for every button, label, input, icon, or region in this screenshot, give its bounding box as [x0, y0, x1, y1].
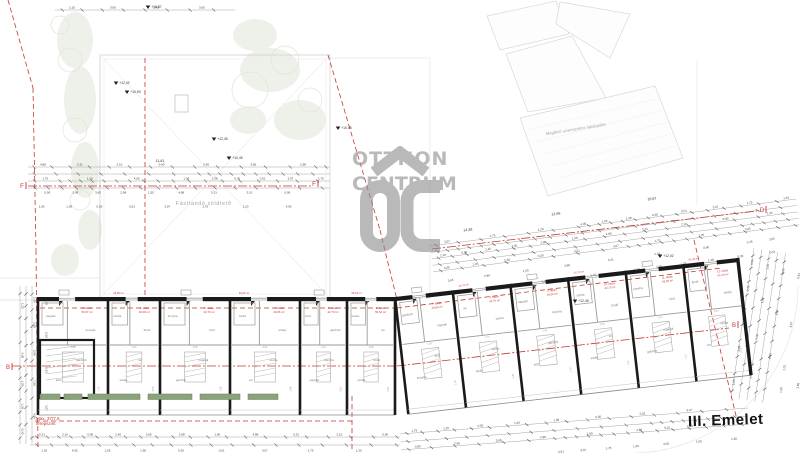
dim-number: 0,51 — [129, 205, 135, 209]
partition-wall — [535, 285, 540, 329]
elevation-marker-icon — [212, 138, 217, 142]
dim-number: 1,38 — [553, 418, 559, 422]
dim-number: 3,07 — [684, 353, 688, 359]
exterior-wall — [545, 277, 568, 284]
room-label: erkély — [352, 314, 361, 318]
garden-vegetation — [78, 210, 102, 250]
dim-number: 4,05 — [444, 265, 451, 270]
exterior-wall — [510, 281, 532, 288]
dim-number: 0,30 — [96, 205, 102, 209]
dim-number: 0,30 — [595, 415, 601, 419]
dim-number: 4,05 — [663, 442, 669, 446]
dim-number: 3,07 — [712, 205, 719, 210]
dim-number: 1,20 — [41, 449, 47, 453]
room-label: fürdő — [144, 328, 151, 332]
dim-number: 0,90 — [750, 259, 755, 266]
dim-number: 1,05 — [472, 262, 479, 267]
exterior-wall — [568, 275, 586, 281]
exterior-wall — [716, 258, 738, 265]
elevation-value: +16,87 — [151, 5, 162, 9]
partition-wall — [650, 272, 655, 316]
dim-number: 1,05 — [369, 346, 374, 349]
apartment-area-exterior: 49,06 m² — [239, 291, 249, 295]
dim-number: 1,20 — [454, 380, 458, 386]
dim-number: 4,05 — [286, 205, 292, 209]
dim-number: 1,38 — [731, 437, 737, 441]
dim-number: 1,75 — [782, 364, 787, 371]
party-wall — [299, 297, 302, 415]
room-label: fürdő — [691, 280, 699, 285]
dim-number: 1,75 — [654, 238, 661, 243]
dimension-chain: 5,312,100,902,453,652,981,504,885,312,10… — [30, 433, 400, 453]
dim-number: 1,75 — [746, 200, 753, 205]
dim-number: 4,05 — [134, 177, 140, 181]
dim-number: 0,30 — [20, 429, 24, 435]
planter — [148, 394, 192, 400]
elevation-value: +12,45 — [217, 137, 228, 141]
dim-number: 4,05 — [72, 449, 78, 453]
building-right-wing: 7. lakás49,06 m²gardróbnappalikonyhaközl… — [393, 251, 753, 415]
room-label: konyha — [633, 286, 643, 291]
dim-number: 3,65 — [146, 433, 152, 437]
room-label: konyha — [168, 314, 178, 318]
dimension-chains: 4,885,312,100,902,453,652,981,751,204,05… — [18, 6, 800, 453]
room-label: szoba — [357, 378, 365, 382]
exterior-wall — [395, 295, 413, 301]
dim-number: 1,05 — [105, 449, 111, 453]
dim-number: 2,98 — [32, 350, 36, 356]
garden-vegetation — [230, 106, 266, 134]
apartment-unit: 6. lakás56,64 m²56,64 m²erkélywcszobafür… — [346, 291, 395, 415]
apartment-area-exterior: 42,70 m² — [574, 269, 585, 274]
room-label: közl. — [669, 296, 676, 301]
dim-number: 0,30 — [600, 322, 606, 326]
door-swing — [251, 301, 255, 306]
red-dashed-line — [380, 230, 397, 300]
elevation-marker-icon — [573, 300, 578, 304]
dim-number: 1,38 — [140, 449, 146, 453]
room-label: szoba — [576, 293, 585, 298]
room-label: nappali — [309, 378, 319, 382]
dim-number: 0,30 — [538, 253, 545, 258]
dim-number: 1,50 — [148, 191, 154, 195]
exterior-wall — [138, 297, 160, 301]
dim-number: 1,75 — [98, 386, 101, 391]
exterior-wall — [658, 264, 683, 271]
dim-number: 1,50 — [214, 433, 220, 437]
dim-number: 0,30 — [178, 449, 184, 453]
dim-number: 5,31 — [211, 191, 217, 195]
red-dashed-line — [33, 88, 36, 250]
dim-number: 4,88 — [40, 163, 46, 167]
room-label: erkély — [491, 346, 500, 351]
dim-number: 3,07 — [262, 449, 268, 453]
window — [473, 290, 486, 292]
dim-number: 3,65 — [769, 237, 776, 242]
room-label: nappali — [518, 299, 528, 304]
room-label: közl. — [435, 353, 442, 358]
elevation-marker-icon — [227, 157, 232, 161]
balcony-box — [642, 261, 653, 267]
dim-number: 3,65 — [796, 382, 800, 389]
elevation-marker-icon — [658, 255, 663, 259]
red-dashed-line — [397, 268, 722, 308]
dim-number: 1,20 — [633, 444, 639, 448]
dim-number: 2,10 — [681, 222, 688, 227]
dim-number: 2,10 — [336, 433, 342, 437]
exterior-wall — [327, 297, 347, 301]
room-label: szoba — [269, 358, 277, 362]
dim-number: 2,10 — [62, 433, 68, 437]
dim-number: 1,05 — [514, 421, 520, 425]
dim-number: 0,51 — [681, 209, 688, 214]
building-left-wing: 1. lakás53,97 m²nappalikonyhaközl.gardró… — [37, 290, 397, 415]
room-label: nappali — [46, 314, 56, 318]
dim-number: 4,05 — [477, 423, 483, 427]
dim-number: 5,31 — [387, 386, 390, 391]
section-marker: B — [6, 365, 10, 371]
apartment-area: 49,06 m² — [139, 310, 150, 314]
dim-number: 0,51 — [260, 177, 266, 181]
dim-number: 2,10 — [69, 6, 75, 10]
dim-number: 2,98 — [120, 191, 126, 195]
dimension-chain: 2,100,902,453,65 — [55, 6, 235, 12]
dim-number: 0,51 — [770, 250, 777, 255]
dim-number: 0,30 — [737, 254, 744, 259]
dim-number: 4,88 — [253, 433, 259, 437]
apartment-area-exterior: 49,06 m² — [113, 291, 123, 295]
dim-number: 0,90 — [110, 6, 116, 10]
section-marker: F — [20, 184, 24, 190]
room-label: wc — [249, 378, 253, 382]
room-label: wc — [138, 358, 142, 362]
planter — [64, 394, 82, 400]
planter — [40, 394, 60, 400]
dim-number: 1,05 — [220, 386, 223, 391]
dim-number: 0,90 — [152, 386, 155, 391]
dim-number: 1,05 — [39, 205, 45, 209]
dim-number: 0,90 — [722, 216, 729, 221]
dim-number: 1,75 — [605, 446, 611, 450]
window — [472, 288, 485, 290]
dim-number: 4,88 — [564, 263, 571, 268]
dim-number: 3,65 — [193, 346, 198, 349]
dim-number: 1,50 — [572, 236, 579, 241]
dim-number: 1,75 — [318, 177, 324, 181]
apartment-area: 61,20 m² — [717, 272, 728, 277]
room-label: nappali — [663, 327, 673, 332]
dim-number: 2,10 — [117, 163, 123, 167]
exterior-wall — [347, 297, 365, 301]
dim-number: 2,45 — [747, 240, 754, 245]
room-label: erkély — [278, 328, 287, 332]
dim-number: 3,65 — [447, 278, 454, 283]
red-dashed-line — [694, 240, 737, 420]
elevation-value: +12,02 — [119, 81, 130, 85]
dim-number: 1,75 — [42, 177, 48, 181]
apartment-area: 42,70 m² — [327, 310, 338, 314]
dim-number: 1,50 — [523, 268, 530, 273]
door-swing — [187, 301, 191, 306]
dim-number: 1,38 — [569, 366, 573, 372]
elevation-value: +10,45 — [232, 156, 243, 160]
room-label: fürdő — [239, 314, 246, 318]
exterior-wall — [160, 297, 187, 301]
room-label: szoba — [495, 316, 504, 321]
floor-title: III. Emelet — [688, 411, 764, 431]
stairs — [537, 334, 558, 366]
garden-vegetation — [51, 244, 79, 276]
building: 1. lakás53,97 m²nappalikonyhaközl.gardró… — [37, 251, 753, 415]
dim-number: 1,38 — [625, 216, 632, 221]
apartment-area: 49,06 m² — [273, 310, 284, 314]
room-label: wc — [463, 306, 468, 310]
dim-number: 0,30 — [652, 212, 659, 217]
dim-number: 0,90 — [44, 191, 50, 195]
dim-number: 1,50 — [427, 342, 433, 346]
dim-number: 2,98 — [540, 240, 547, 245]
dim-number: 1,75 — [411, 428, 417, 432]
dim-number: 4,88 — [178, 191, 184, 195]
red-dashed-line — [8, 0, 33, 88]
apartment-area: 42,70 m² — [203, 310, 214, 314]
dim-number: 1,20 — [132, 346, 137, 349]
dim-number: 1,20 — [443, 426, 449, 430]
room-label: gardrób — [76, 358, 87, 362]
apartment-area: 42,70 m² — [489, 298, 500, 303]
exterior-wall — [230, 297, 251, 301]
room-label: konyha — [552, 309, 562, 314]
dim-number: 5,31 — [642, 227, 649, 232]
dim-number: 2,45 — [454, 441, 460, 445]
room-label: gardrób — [402, 312, 413, 317]
dim-number: 4,05 — [714, 309, 720, 313]
room-label: gardrób — [176, 378, 187, 382]
apartment-area: 49,06 m² — [662, 278, 673, 283]
terrace-label: Fásítandó zöldtető — [176, 201, 232, 207]
balcony-box — [59, 290, 69, 295]
room-label: erkély — [120, 378, 129, 382]
end-wall — [736, 258, 753, 376]
dim-number: 5,31 — [608, 257, 615, 262]
partition-wall — [593, 279, 598, 323]
exterior-wall — [426, 290, 454, 297]
dim-number: 0,51 — [263, 346, 268, 349]
dim-number: 2,98 — [300, 163, 306, 167]
garden-vegetation — [71, 142, 99, 198]
dim-number: 2,45 — [32, 297, 36, 303]
dim-number: 1,50 — [627, 360, 631, 366]
dim-number: 1,75 — [485, 335, 491, 339]
dim-number: 5,31 — [39, 433, 45, 437]
dim-number: 3,65 — [250, 163, 256, 167]
dim-number: 2,45 — [485, 247, 492, 252]
dim-number: 3,07 — [44, 405, 48, 411]
dim-number: 2,45 — [115, 433, 121, 437]
dim-number: 5,31 — [658, 316, 664, 320]
dim-number: 0,51 — [219, 449, 225, 453]
room-label: gardrób — [548, 340, 559, 345]
span-dimension: 11,61 — [156, 159, 165, 163]
room-label: fürdő — [611, 303, 619, 308]
elevation-marker-icon — [336, 127, 341, 131]
party-wall — [346, 297, 349, 415]
section-marker: D — [760, 208, 765, 214]
dim-number: 2,45 — [766, 211, 773, 216]
dim-number: 3,07 — [444, 239, 451, 244]
room-label: konyha — [324, 358, 334, 362]
garden-vegetation — [233, 19, 277, 51]
exterior-wall — [108, 297, 126, 301]
room-label: erkély — [724, 290, 733, 295]
dim-number: 1,05 — [696, 439, 702, 443]
dim-number: 0,90 — [382, 433, 388, 437]
garden-vegetation — [57, 12, 93, 68]
room-label: közl. — [209, 328, 215, 332]
room-label: közl. — [305, 314, 311, 318]
dim-number: 1,38 — [504, 258, 511, 263]
apartment-area: 49,06 m² — [547, 292, 558, 297]
section-marker: F — [312, 182, 316, 188]
dim-number: 1,20 — [783, 196, 790, 201]
dim-number: 1,20 — [779, 386, 784, 393]
dim-number: 1,20 — [356, 449, 362, 453]
dim-number: 0,90 — [703, 245, 710, 250]
dim-number: 3,07 — [613, 244, 620, 249]
room-label: fürdő — [373, 358, 380, 362]
dim-number: 3,65 — [496, 438, 502, 442]
dim-number: 2,45 — [746, 285, 751, 292]
balcony-box — [411, 287, 422, 293]
garden-vegetation — [64, 66, 96, 134]
dim-number: 0,51 — [796, 272, 800, 279]
planter — [200, 394, 240, 400]
elevation-value: +12,45 — [578, 299, 589, 303]
span-dimension: 14,38 — [463, 227, 472, 232]
dim-number: 2,98 — [540, 435, 546, 439]
max-height-note-line2: terepszint — [36, 421, 60, 426]
red-dashed-line — [328, 55, 380, 230]
exterior-wall — [453, 288, 473, 294]
dim-number: 0,30 — [44, 332, 48, 338]
window — [645, 270, 658, 272]
exterior-wall — [598, 271, 626, 278]
room-label: wc — [707, 343, 712, 347]
dim-number: 1,20 — [243, 205, 249, 209]
dim-number: 0,90 — [159, 163, 165, 167]
elevation-value: +10,90 — [130, 90, 141, 94]
floorplan-canvas: 4,885,312,100,902,453,652,981,751,204,05… — [0, 0, 800, 453]
dim-number: 3,07 — [580, 448, 586, 452]
dim-number: 1,20 — [20, 303, 24, 309]
dim-number: 1,75 — [308, 449, 314, 453]
dim-number: 4,05 — [745, 227, 752, 232]
exterior-wall — [300, 297, 316, 301]
planter — [248, 394, 278, 400]
dim-number: 2,45 — [72, 191, 78, 195]
dim-number: 0,51 — [558, 450, 564, 453]
room-label: szoba — [720, 320, 729, 325]
apartment-area-exterior: 61,20 m² — [688, 256, 699, 261]
elevation-marker-icon — [114, 82, 119, 86]
dim-number: 1,50 — [731, 379, 736, 386]
apartment-area-exterior: 56,64 m² — [351, 291, 361, 295]
planter — [88, 394, 140, 400]
dim-number: 3,65 — [199, 6, 205, 10]
dim-number: 1,38 — [20, 403, 24, 409]
elevation-marker-icon — [146, 6, 151, 10]
dim-number: 1,20 — [87, 177, 93, 181]
balcony-box — [181, 290, 191, 295]
dim-number: 2,10 — [440, 253, 447, 258]
dim-number: 1,50 — [32, 380, 36, 386]
dim-number: 5,31 — [664, 426, 670, 430]
span-dimension: 12,99 — [551, 211, 560, 216]
dim-number: 2,10 — [247, 191, 253, 195]
dim-number: 5,31 — [293, 433, 299, 437]
dim-number: 2,45 — [203, 163, 209, 167]
apartment-unit: 5. lakás42,70 m²közl.gardróbnappalikonyh… — [299, 290, 347, 415]
apartment-area: 49,06 m² — [431, 305, 442, 310]
room-label: konyha — [86, 328, 96, 332]
apartment-area-exterior: 42,70 m² — [458, 283, 469, 288]
window — [532, 283, 545, 285]
dim-number: 2,98 — [290, 386, 293, 391]
apartment-area: 53,97 m² — [81, 310, 92, 314]
dim-number: 0,90 — [87, 433, 93, 437]
dim-number: 1,38 — [66, 205, 72, 209]
room-label: közl. — [534, 362, 541, 367]
span-dimension: 16,87 — [647, 196, 656, 201]
bathroom — [457, 294, 477, 318]
dim-number: 2,98 — [179, 433, 185, 437]
exterior-wall — [267, 297, 300, 301]
dim-number: 2,10 — [321, 346, 326, 349]
neighbor-building — [506, 36, 606, 112]
dim-number: 1,38 — [212, 177, 218, 181]
elevation-marker-icon — [125, 91, 130, 95]
dim-number: 3,07 — [686, 408, 692, 412]
dim-number: 0,90 — [415, 444, 421, 448]
dim-number: 0,90 — [284, 191, 290, 195]
dim-number: 4,05 — [20, 352, 24, 358]
exterior-wall — [203, 297, 230, 301]
exterior-wall — [38, 297, 59, 301]
dim-number: 2,98 — [484, 273, 491, 278]
elevation-value: +10,45 — [341, 126, 352, 130]
window — [704, 263, 717, 264]
dim-number: 3,07 — [164, 205, 170, 209]
room-label: wc — [381, 328, 385, 332]
exterior-wall — [75, 297, 108, 301]
dim-number: 2,45 — [542, 329, 548, 333]
section-marker: B — [732, 323, 736, 329]
apartment-area: 56,64 m² — [375, 310, 386, 314]
dim-number: 1,05 — [20, 381, 24, 387]
skylight — [175, 95, 188, 112]
max-height-note: Max. 37/7,5 terepszint — [36, 416, 60, 426]
door-swing — [59, 301, 63, 306]
room-label: fürdő — [476, 369, 484, 374]
exterior-wall — [376, 297, 395, 301]
section-line — [397, 328, 729, 366]
dim-number: 1,05 — [183, 177, 189, 181]
dim-number: 4,05 — [580, 222, 587, 227]
room-label: gardrób — [330, 328, 341, 332]
apartment-area: 42,70 m² — [604, 285, 615, 290]
dim-number: 4,88 — [605, 231, 612, 236]
dim-number: 1,05 — [602, 219, 609, 224]
